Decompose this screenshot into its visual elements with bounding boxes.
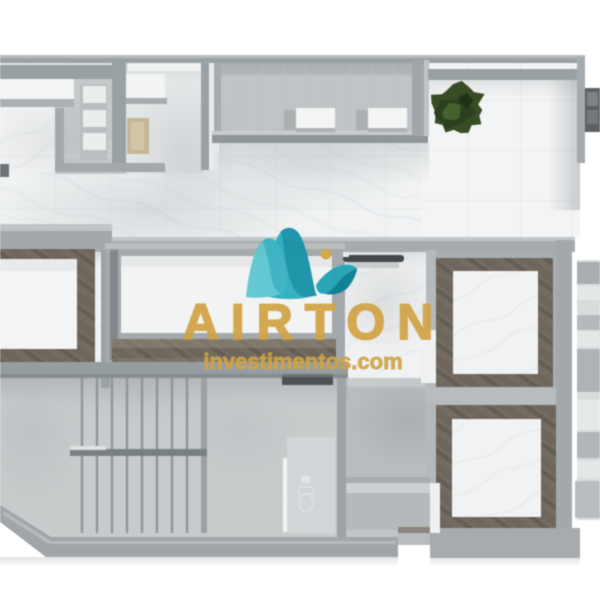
svg-text:investimentos.com: investimentos.com	[203, 349, 402, 374]
svg-text:AIRTON: AIRTON	[183, 294, 446, 350]
